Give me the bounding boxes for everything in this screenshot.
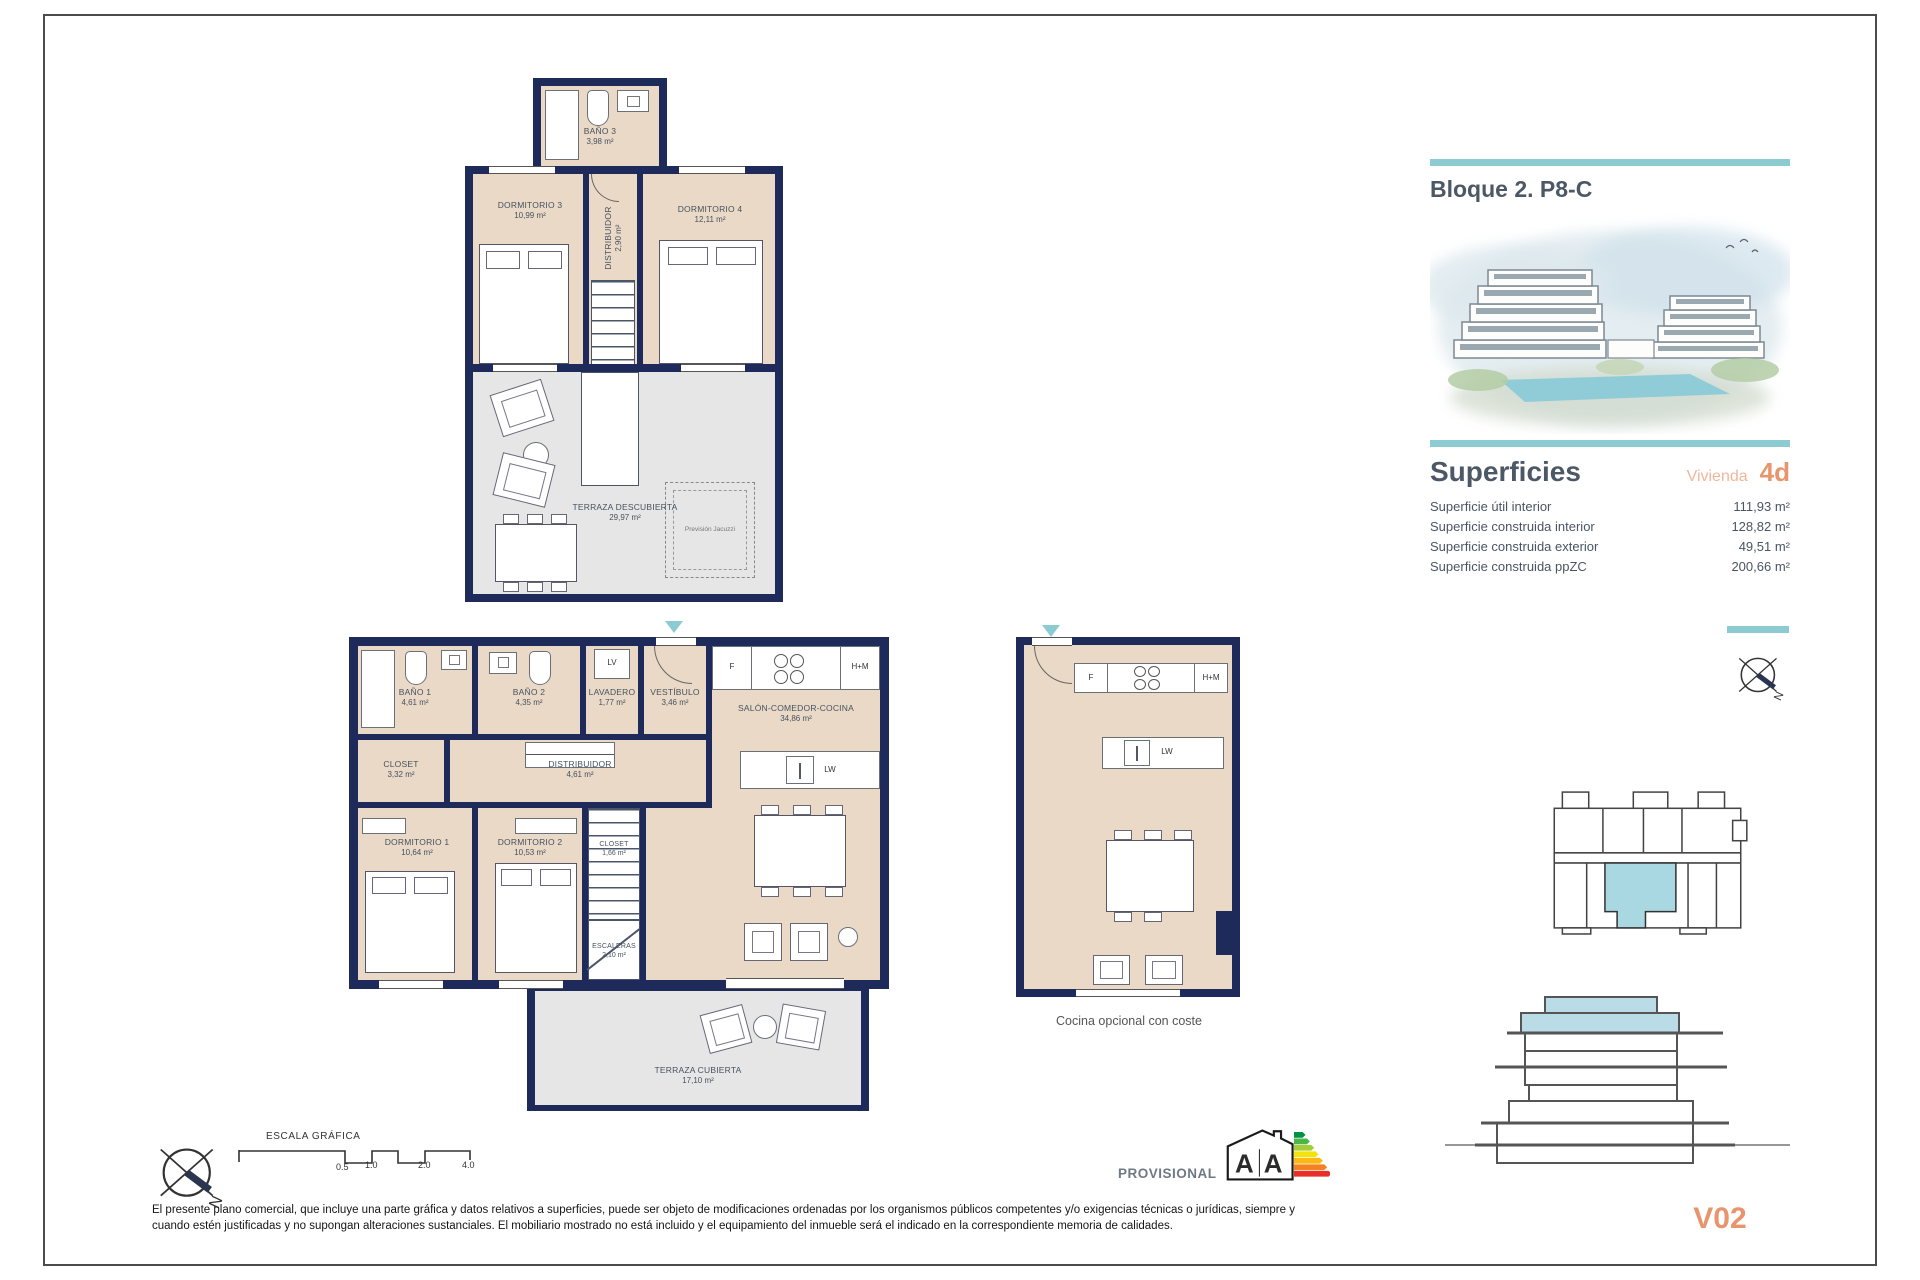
armchair bbox=[1145, 955, 1183, 985]
sink-fixture bbox=[617, 90, 649, 112]
room-label-dormitorio2: DORMITORIO 2 10,53 m² bbox=[482, 837, 578, 857]
room-label-dormitorio4: DORMITORIO 4 12,11 m² bbox=[655, 204, 765, 224]
room-label-dormitorio3: DORMITORIO 3 10,99 m² bbox=[477, 200, 583, 220]
room-label-escaleras: ESCALERAS 2,10 m² bbox=[582, 943, 646, 960]
room-area: 34,86 m² bbox=[720, 714, 872, 724]
chair bbox=[527, 514, 543, 524]
bed bbox=[495, 863, 577, 973]
optional-kitchen-plan: F H+M LW bbox=[1016, 625, 1242, 1007]
room-name: BAÑO 1 bbox=[363, 687, 467, 698]
room-name: BAÑO 3 bbox=[541, 126, 659, 137]
chair bbox=[551, 582, 567, 592]
window bbox=[499, 980, 563, 989]
vivienda-tag: Vivienda4d bbox=[1687, 457, 1790, 488]
bed bbox=[479, 244, 569, 364]
energy-rating-icon: A A bbox=[1222, 1116, 1330, 1194]
main-floor-plan: BAÑO 1 4,61 m² BAÑO 2 4,35 m² LV LAVADER… bbox=[349, 625, 895, 1117]
terrace-door bbox=[493, 364, 557, 372]
room-area: 10,99 m² bbox=[477, 211, 583, 221]
chair bbox=[1144, 830, 1162, 840]
room-name: CLOSET bbox=[360, 759, 442, 770]
armchair bbox=[790, 923, 828, 961]
north-label: N bbox=[1771, 689, 1785, 702]
superficies-table: Superficie útil interior 111,93 m² Super… bbox=[1430, 496, 1790, 576]
room-name: DORMITORIO 3 bbox=[477, 200, 583, 211]
washer-label: LV bbox=[594, 659, 630, 667]
room-area: 10,53 m² bbox=[482, 848, 578, 858]
chair bbox=[825, 887, 843, 897]
plant bbox=[838, 927, 858, 947]
room-area: 1,66 m² bbox=[582, 850, 646, 858]
stair-enclosure bbox=[581, 372, 639, 486]
chair bbox=[503, 582, 519, 592]
window bbox=[679, 166, 745, 174]
room-name: DORMITORIO 4 bbox=[655, 204, 765, 215]
room-label-bano1: BAÑO 1 4,61 m² bbox=[363, 687, 467, 707]
entry-arrow-icon bbox=[1042, 625, 1060, 637]
toilet-fixture bbox=[587, 90, 609, 126]
room-area: 3,98 m² bbox=[541, 137, 659, 147]
bed bbox=[659, 240, 763, 364]
salon-floor-extension bbox=[646, 808, 712, 980]
room-area: 4,35 m² bbox=[482, 698, 576, 708]
room-area: 2,10 m² bbox=[582, 952, 646, 960]
hob-icon bbox=[1134, 666, 1160, 690]
room-label-distribuidor: DISTRIBUIDOR 4,61 m² bbox=[515, 759, 645, 779]
dishwasher-label: LW bbox=[1154, 748, 1180, 756]
lounge-chair bbox=[776, 1003, 826, 1050]
armchair bbox=[744, 923, 782, 961]
oven-label: H+M bbox=[1194, 674, 1228, 682]
dishwasher-label: LW bbox=[817, 766, 843, 774]
room-name: BAÑO 2 bbox=[482, 687, 576, 698]
room-name: TERRAZA DESCUBIERTA bbox=[543, 502, 707, 513]
island-sink bbox=[786, 756, 814, 784]
fridge-label: F bbox=[1074, 674, 1108, 682]
room-area: 29,97 m² bbox=[543, 513, 707, 523]
room-label-distribuidor-upper: DISTRIBUIDOR 2,90 m² bbox=[603, 200, 623, 276]
entry-door-opening bbox=[1032, 637, 1072, 646]
room-name: DORMITORIO 1 bbox=[371, 837, 463, 848]
toilet-fixture bbox=[405, 651, 427, 685]
room-area: 3,46 m² bbox=[636, 698, 714, 708]
wardrobe bbox=[515, 818, 577, 834]
dining-table bbox=[754, 815, 846, 887]
elevation-highlighted-penthouse bbox=[1545, 997, 1657, 1013]
room-name: VESTÍBULO bbox=[636, 687, 714, 698]
legal-disclaimer: El presente plano comercial, que incluye… bbox=[152, 1202, 1330, 1234]
superficie-label: Superficie útil interior bbox=[1430, 499, 1551, 514]
superficie-value: 49,51 m² bbox=[1739, 539, 1790, 554]
scale-bar-graphic bbox=[238, 1148, 478, 1168]
jacuzzi-provision-label: Previsión Jacuzzi bbox=[667, 526, 753, 533]
vivienda-code: 4d bbox=[1760, 457, 1790, 487]
provisional-label: PROVISIONAL bbox=[1118, 1166, 1217, 1181]
accent-bar-mid bbox=[1430, 440, 1790, 447]
superficie-label: Superficie construida ppZC bbox=[1430, 559, 1587, 574]
room-name: DISTRIBUIDOR bbox=[603, 200, 614, 276]
room-label-terraza-cubierta: TERRAZA CUBIERTA 17,10 m² bbox=[643, 1065, 753, 1085]
superficie-label: Superficie construida exterior bbox=[1430, 539, 1598, 554]
accent-bar-small bbox=[1727, 626, 1789, 633]
entry-door-opening bbox=[656, 637, 696, 646]
room-label-closet: CLOSET 3,32 m² bbox=[360, 759, 442, 779]
room-label-salon: SALÓN-COMEDOR-COCINA 34,86 m² bbox=[720, 703, 872, 723]
accent-bar-top bbox=[1430, 159, 1790, 166]
wall bbox=[1216, 911, 1240, 955]
superficies-header: Superficies Vivienda4d bbox=[1430, 450, 1790, 488]
scale-bar: 0.5 1.0 2.0 4.0 bbox=[238, 1148, 478, 1180]
block-title: Bloque 2. P8-C bbox=[1430, 176, 1790, 203]
chair bbox=[1174, 830, 1192, 840]
room-area: 12,11 m² bbox=[655, 215, 765, 225]
building-elevation bbox=[1445, 985, 1790, 1185]
superficies-row: Superficie construida interior 128,82 m² bbox=[1430, 516, 1790, 536]
terrace-door bbox=[681, 364, 745, 372]
oven-label: H+M bbox=[840, 663, 880, 671]
optional-kitchen-caption: Cocina opcional con coste bbox=[1016, 1014, 1242, 1028]
island-sink bbox=[1124, 740, 1150, 766]
chair bbox=[1114, 830, 1132, 840]
scale-tick: 0.5 bbox=[336, 1162, 349, 1172]
room-name: SALÓN-COMEDOR-COCINA bbox=[720, 703, 872, 714]
dining-table bbox=[495, 524, 577, 582]
unit-reference: V02 bbox=[1650, 1202, 1790, 1236]
room-name: ESCALERAS bbox=[582, 943, 646, 952]
vivienda-label: Vivienda bbox=[1687, 468, 1748, 485]
terrace-slider bbox=[1076, 989, 1180, 997]
room-name: CLOSET bbox=[582, 841, 646, 850]
toilet-fixture bbox=[529, 651, 551, 685]
armchair bbox=[1093, 955, 1130, 985]
entry-arrow-icon bbox=[665, 621, 683, 633]
chair bbox=[825, 805, 843, 815]
elevation-highlighted-floor bbox=[1521, 1013, 1679, 1033]
room-label-closet2: CLOSET 1,66 m² bbox=[582, 841, 646, 858]
chair bbox=[1144, 912, 1162, 922]
room-area: 3,32 m² bbox=[360, 770, 442, 780]
scale-bar-title: ESCALA GRÁFICA bbox=[266, 1131, 361, 1142]
room-area: 2,90 m² bbox=[614, 200, 624, 276]
window bbox=[489, 166, 555, 174]
energy-letter: A bbox=[1264, 1150, 1283, 1178]
round-table bbox=[753, 1015, 777, 1039]
energy-arrow-bars bbox=[1294, 1132, 1330, 1177]
chair bbox=[761, 887, 779, 897]
chair bbox=[793, 805, 811, 815]
dining-table bbox=[1106, 840, 1194, 912]
terrace-slider bbox=[726, 978, 844, 989]
fridge-label: F bbox=[712, 663, 752, 671]
chair bbox=[503, 514, 519, 524]
room-label-dormitorio1: DORMITORIO 1 10,64 m² bbox=[371, 837, 463, 857]
scale-tick: 4.0 bbox=[462, 1160, 475, 1170]
superficies-title: Superficies bbox=[1430, 456, 1581, 488]
superficie-value: 200,66 m² bbox=[1731, 559, 1790, 574]
sink-fixture bbox=[489, 652, 517, 674]
optional-salon-floor bbox=[1024, 645, 1232, 989]
window bbox=[379, 980, 443, 989]
superficies-row: Superficie construida exterior 49,51 m² bbox=[1430, 536, 1790, 556]
compass-icon: N bbox=[1733, 646, 1791, 708]
hob-icon bbox=[774, 654, 804, 684]
superficie-value: 111,93 m² bbox=[1733, 499, 1790, 514]
chair bbox=[761, 805, 779, 815]
room-label-bano3: BAÑO 3 3,98 m² bbox=[541, 126, 659, 146]
room-name: TERRAZA CUBIERTA bbox=[643, 1065, 753, 1076]
sink-fixture bbox=[441, 650, 467, 670]
superficie-label: Superficie construida interior bbox=[1430, 519, 1595, 534]
upper-floor-plan: BAÑO 3 3,98 m² DORMITORIO 3 10,99 m² DOR… bbox=[465, 78, 787, 602]
superficie-value: 128,82 m² bbox=[1731, 519, 1790, 534]
superficies-row: Superficie construida ppZC 200,66 m² bbox=[1430, 556, 1790, 576]
room-label-bano2: BAÑO 2 4,35 m² bbox=[482, 687, 576, 707]
chair bbox=[1114, 912, 1132, 922]
room-area: 17,10 m² bbox=[643, 1076, 753, 1086]
room-label-vestibulo: VESTÍBULO 3,46 m² bbox=[636, 687, 714, 707]
chair bbox=[793, 887, 811, 897]
key-plan bbox=[1545, 786, 1750, 936]
room-area: 4,61 m² bbox=[363, 698, 467, 708]
chair bbox=[527, 582, 543, 592]
room-area: 4,61 m² bbox=[515, 770, 645, 780]
room-area: 10,64 m² bbox=[371, 848, 463, 858]
scale-tick: 1.0 bbox=[365, 1160, 378, 1170]
superficies-row: Superficie útil interior 111,93 m² bbox=[1430, 496, 1790, 516]
room-label-terraza-descubierta: TERRAZA DESCUBIERTA 29,97 m² bbox=[543, 502, 707, 522]
staircase bbox=[591, 280, 635, 370]
wardrobe bbox=[362, 818, 406, 834]
room-name: DORMITORIO 2 bbox=[482, 837, 578, 848]
staircase bbox=[588, 808, 640, 920]
building-render-image bbox=[1430, 212, 1790, 434]
bed bbox=[365, 871, 455, 973]
room-name: DISTRIBUIDOR bbox=[515, 759, 645, 770]
energy-letter: A bbox=[1235, 1150, 1254, 1178]
shower-fixture bbox=[545, 90, 579, 160]
scale-tick: 2.0 bbox=[418, 1160, 431, 1170]
